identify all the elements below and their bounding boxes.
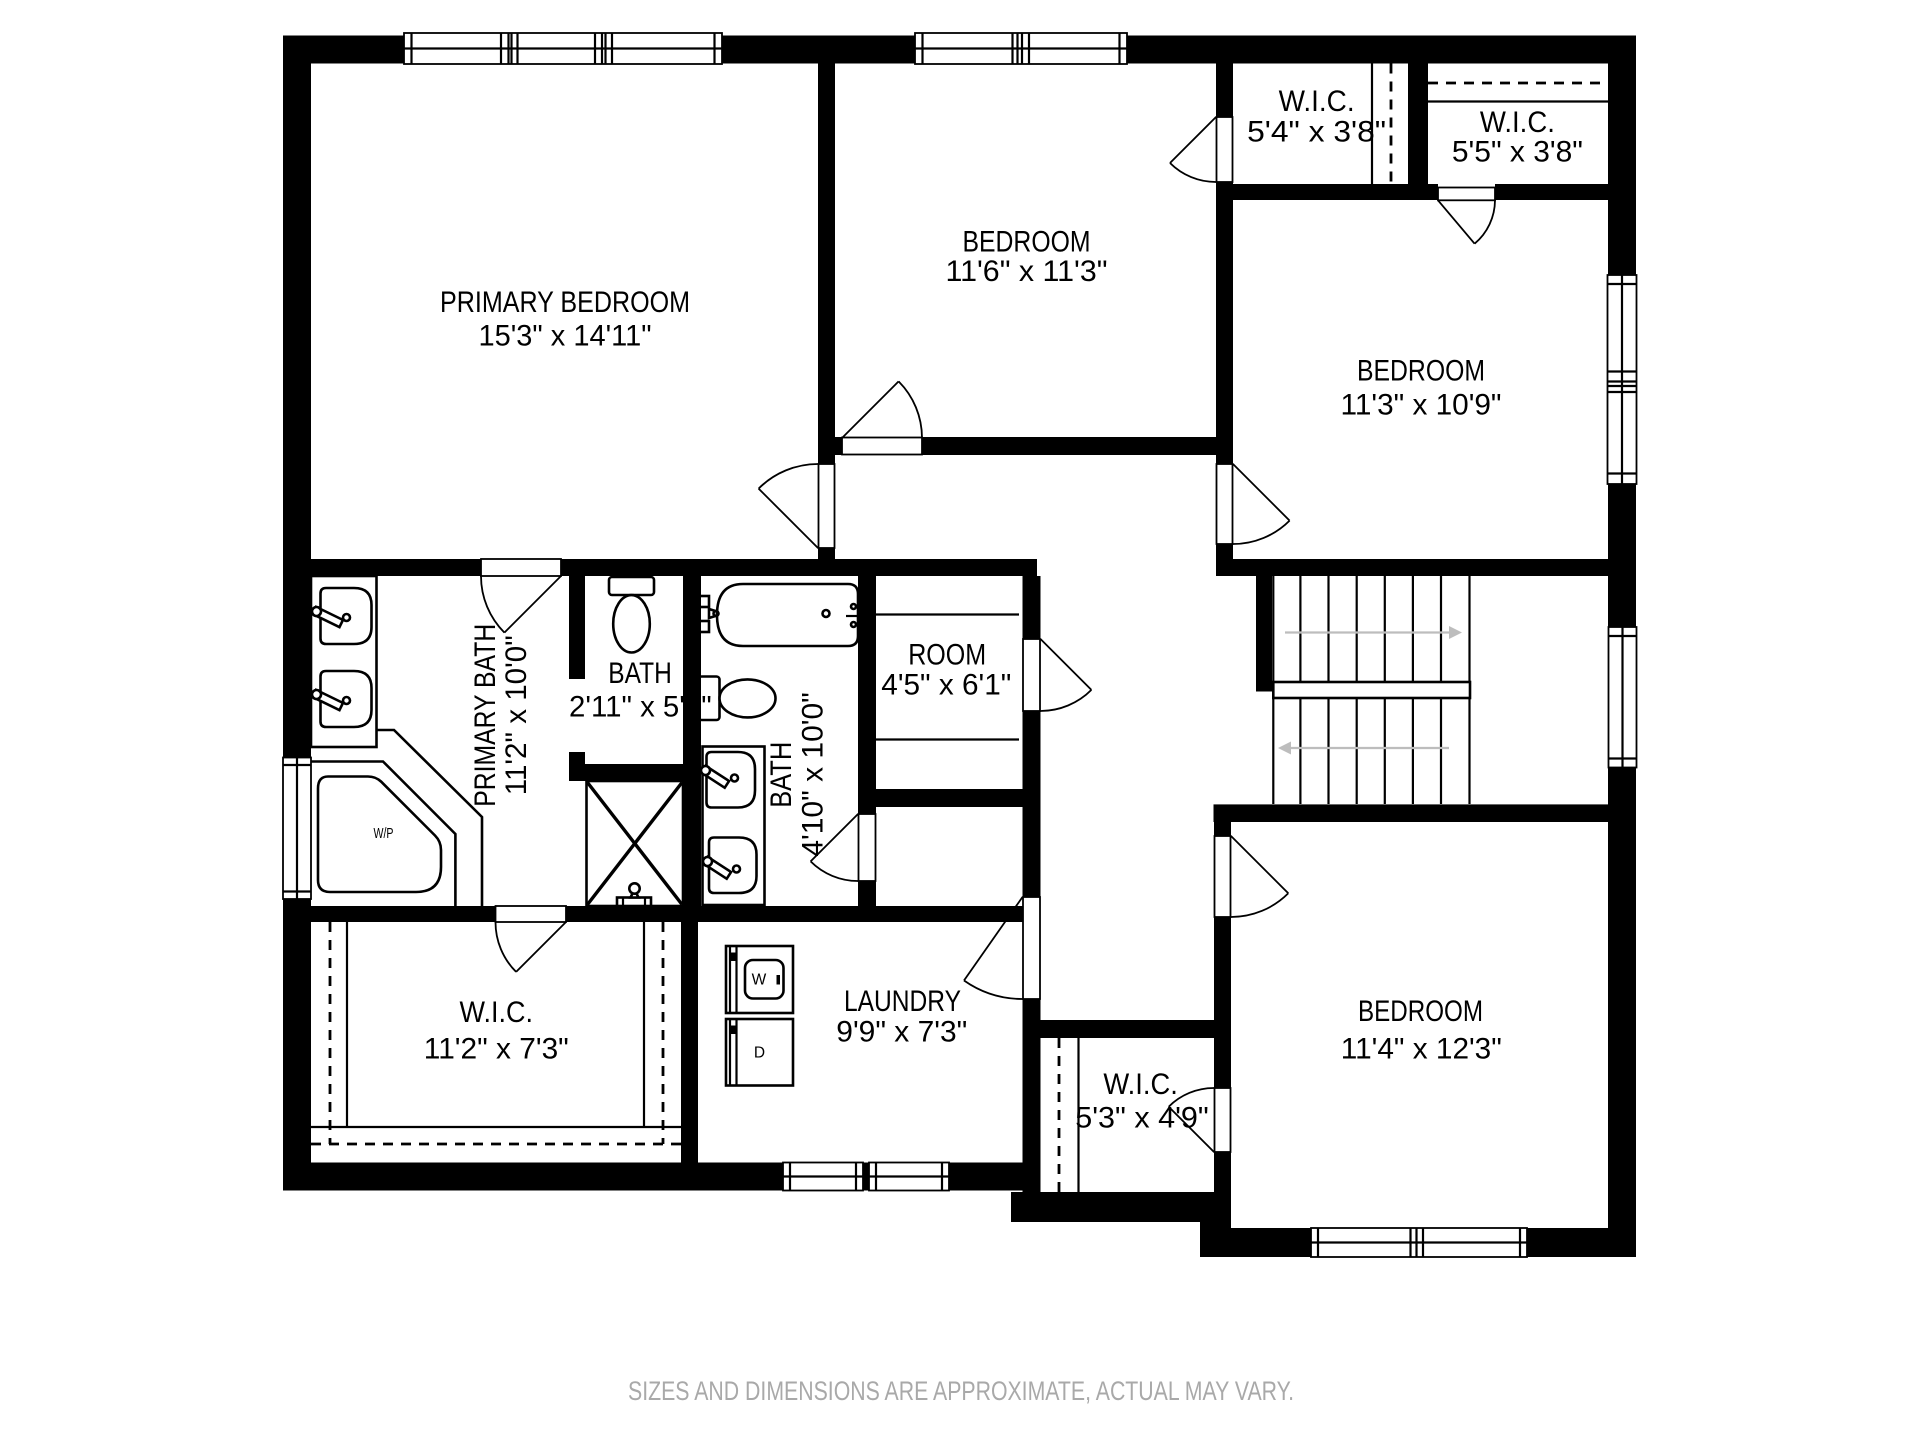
svg-text:5'3" x 4'9": 5'3" x 4'9" [1075, 1101, 1209, 1134]
svg-text:BATH: BATH [608, 657, 672, 690]
svg-text:11'6" x 11'3": 11'6" x 11'3" [946, 255, 1108, 288]
svg-text:D: D [754, 1045, 765, 1062]
svg-text:11'3" x 10'9": 11'3" x 10'9" [1341, 388, 1502, 421]
svg-text:PRIMARY BATH: PRIMARY BATH [469, 624, 502, 807]
svg-text:SIZES AND DIMENSIONS ARE APPRO: SIZES AND DIMENSIONS ARE APPROXIMATE, AC… [628, 1376, 1294, 1406]
svg-text:4'10" x 10'0": 4'10" x 10'0" [797, 692, 830, 857]
svg-text:11'2" x 7'3": 11'2" x 7'3" [424, 1033, 569, 1066]
svg-text:W.I.C.: W.I.C. [1480, 106, 1555, 139]
svg-text:W.I.C.: W.I.C. [460, 996, 534, 1029]
svg-text:5'4" x 3'8": 5'4" x 3'8" [1247, 115, 1386, 148]
svg-text:W.I.C.: W.I.C. [1103, 1068, 1178, 1101]
svg-text:5'5" x 3'8": 5'5" x 3'8" [1452, 136, 1583, 169]
svg-text:BEDROOM: BEDROOM [1358, 995, 1483, 1028]
svg-text:PRIMARY BEDROOM: PRIMARY BEDROOM [440, 286, 690, 319]
svg-text:BEDROOM: BEDROOM [963, 225, 1091, 258]
svg-text:BATH: BATH [765, 742, 798, 808]
svg-text:BEDROOM: BEDROOM [1357, 354, 1485, 387]
svg-text:15'3" x 14'11": 15'3" x 14'11" [479, 320, 652, 353]
svg-text:W/P: W/P [374, 825, 394, 842]
svg-text:W: W [752, 972, 767, 989]
svg-text:LAUNDRY: LAUNDRY [844, 985, 961, 1018]
svg-text:11'2" x 10'0": 11'2" x 10'0" [500, 635, 533, 795]
svg-text:W.I.C.: W.I.C. [1279, 85, 1355, 118]
svg-text:ROOM: ROOM [908, 639, 986, 672]
svg-text:11'4" x 12'3": 11'4" x 12'3" [1341, 1033, 1502, 1066]
svg-text:9'9" x 7'3": 9'9" x 7'3" [836, 1015, 967, 1048]
svg-text:4'5" x 6'1": 4'5" x 6'1" [881, 668, 1011, 701]
